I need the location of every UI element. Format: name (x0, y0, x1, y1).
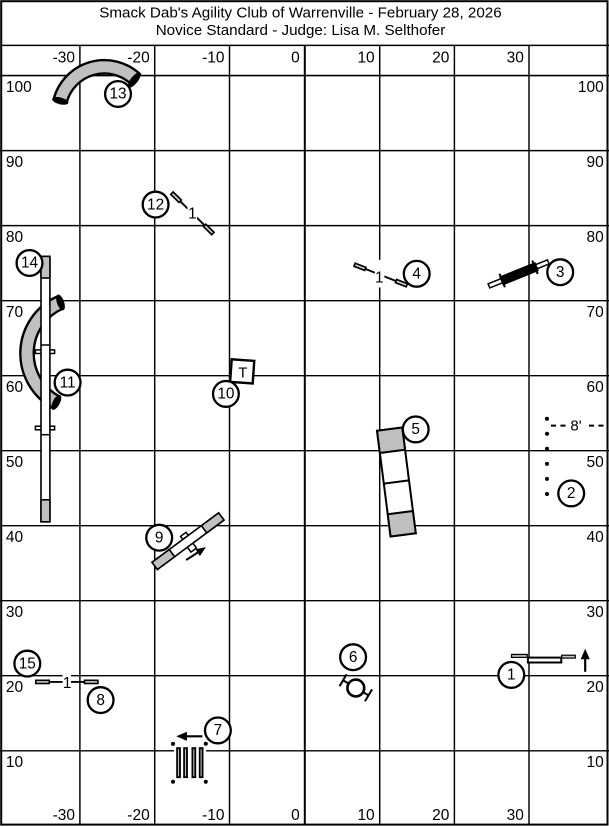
svg-text:10: 10 (217, 386, 234, 403)
svg-text:40: 40 (6, 529, 24, 546)
svg-text:7: 7 (214, 722, 223, 739)
svg-text:20: 20 (6, 679, 24, 696)
svg-text:8': 8' (570, 418, 581, 435)
svg-text:30: 30 (6, 604, 24, 621)
svg-text:T: T (238, 365, 247, 382)
svg-text:12: 12 (147, 196, 164, 213)
svg-text:0: 0 (291, 807, 300, 824)
svg-text:80: 80 (6, 229, 24, 246)
svg-text:100: 100 (6, 79, 32, 96)
svg-text:90: 90 (6, 154, 24, 171)
svg-text:30: 30 (507, 49, 525, 66)
svg-text:-10: -10 (202, 49, 225, 66)
svg-text:10: 10 (357, 49, 375, 66)
svg-text:2: 2 (567, 485, 576, 502)
svg-text:80: 80 (587, 229, 605, 246)
svg-text:Smack Dab's Agility Club of Wa: Smack Dab's Agility Club of Warrenville … (99, 5, 501, 22)
svg-text:10: 10 (6, 754, 24, 771)
svg-text:-20: -20 (127, 49, 150, 66)
svg-text:1: 1 (188, 205, 197, 222)
svg-text:60: 60 (587, 379, 605, 396)
svg-text:1: 1 (375, 270, 384, 287)
svg-text:20: 20 (587, 679, 605, 696)
svg-text:-10: -10 (202, 807, 225, 824)
svg-text:20: 20 (432, 807, 450, 824)
svg-text:5: 5 (411, 421, 420, 438)
svg-text:Novice Standard - Judge: Lisa: Novice Standard - Judge: Lisa M. Selthof… (156, 22, 446, 39)
svg-text:60: 60 (6, 379, 24, 396)
svg-text:0: 0 (291, 49, 300, 66)
svg-text:1: 1 (63, 675, 72, 692)
svg-text:1: 1 (507, 667, 516, 684)
svg-text:9: 9 (155, 529, 164, 546)
svg-text:3: 3 (556, 264, 565, 281)
svg-text:70: 70 (587, 304, 605, 321)
svg-text:30: 30 (507, 807, 525, 824)
svg-text:90: 90 (587, 154, 605, 171)
svg-text:11: 11 (60, 374, 76, 391)
svg-text:4: 4 (412, 266, 421, 283)
svg-text:10: 10 (357, 807, 375, 824)
svg-text:40: 40 (587, 529, 605, 546)
svg-text:50: 50 (6, 454, 24, 471)
svg-text:10: 10 (587, 754, 605, 771)
svg-text:13: 13 (109, 86, 126, 103)
svg-text:-30: -30 (53, 807, 76, 824)
svg-text:14: 14 (21, 255, 39, 272)
svg-text:8: 8 (96, 692, 105, 709)
svg-text:6: 6 (349, 649, 358, 666)
svg-text:15: 15 (19, 655, 36, 672)
svg-text:30: 30 (587, 604, 605, 621)
svg-text:20: 20 (432, 49, 450, 66)
svg-text:50: 50 (587, 454, 605, 471)
svg-text:70: 70 (6, 304, 24, 321)
svg-text:-30: -30 (53, 49, 76, 66)
svg-text:-20: -20 (127, 807, 150, 824)
svg-text:100: 100 (578, 79, 604, 96)
